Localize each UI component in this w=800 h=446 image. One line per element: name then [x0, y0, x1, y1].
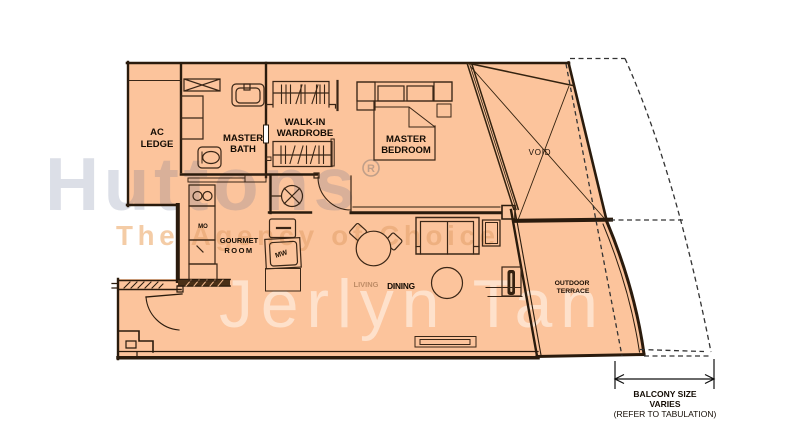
svg-text:R: R [367, 163, 375, 175]
svg-text:GOURMET: GOURMET [220, 236, 259, 245]
svg-text:OUTDOOR: OUTDOOR [555, 280, 590, 287]
svg-text:(REFER TO TABULATION): (REFER TO TABULATION) [614, 409, 717, 419]
svg-text:VOID: VOID [529, 148, 552, 157]
svg-text:WALK-IN: WALK-IN [285, 117, 326, 128]
svg-text:VARIES: VARIES [649, 399, 680, 409]
svg-text:MO: MO [198, 224, 208, 230]
svg-text:ROOM: ROOM [224, 246, 253, 255]
svg-text:LEDGE: LEDGE [141, 139, 174, 150]
svg-text:DINING: DINING [387, 281, 415, 291]
svg-text:TERRACE: TERRACE [557, 288, 590, 295]
svg-text:BATH: BATH [230, 144, 256, 155]
svg-text:MASTER: MASTER [223, 133, 263, 144]
svg-text:Jerlyn Tan: Jerlyn Tan [219, 266, 606, 342]
svg-text:BALCONY SIZE: BALCONY SIZE [633, 389, 696, 399]
svg-text:BEDROOM: BEDROOM [381, 145, 431, 156]
svg-text:LIVING: LIVING [353, 280, 378, 289]
svg-text:MASTER: MASTER [386, 134, 426, 145]
svg-text:AC: AC [150, 127, 164, 138]
svg-text:WARDROBE: WARDROBE [277, 128, 333, 139]
